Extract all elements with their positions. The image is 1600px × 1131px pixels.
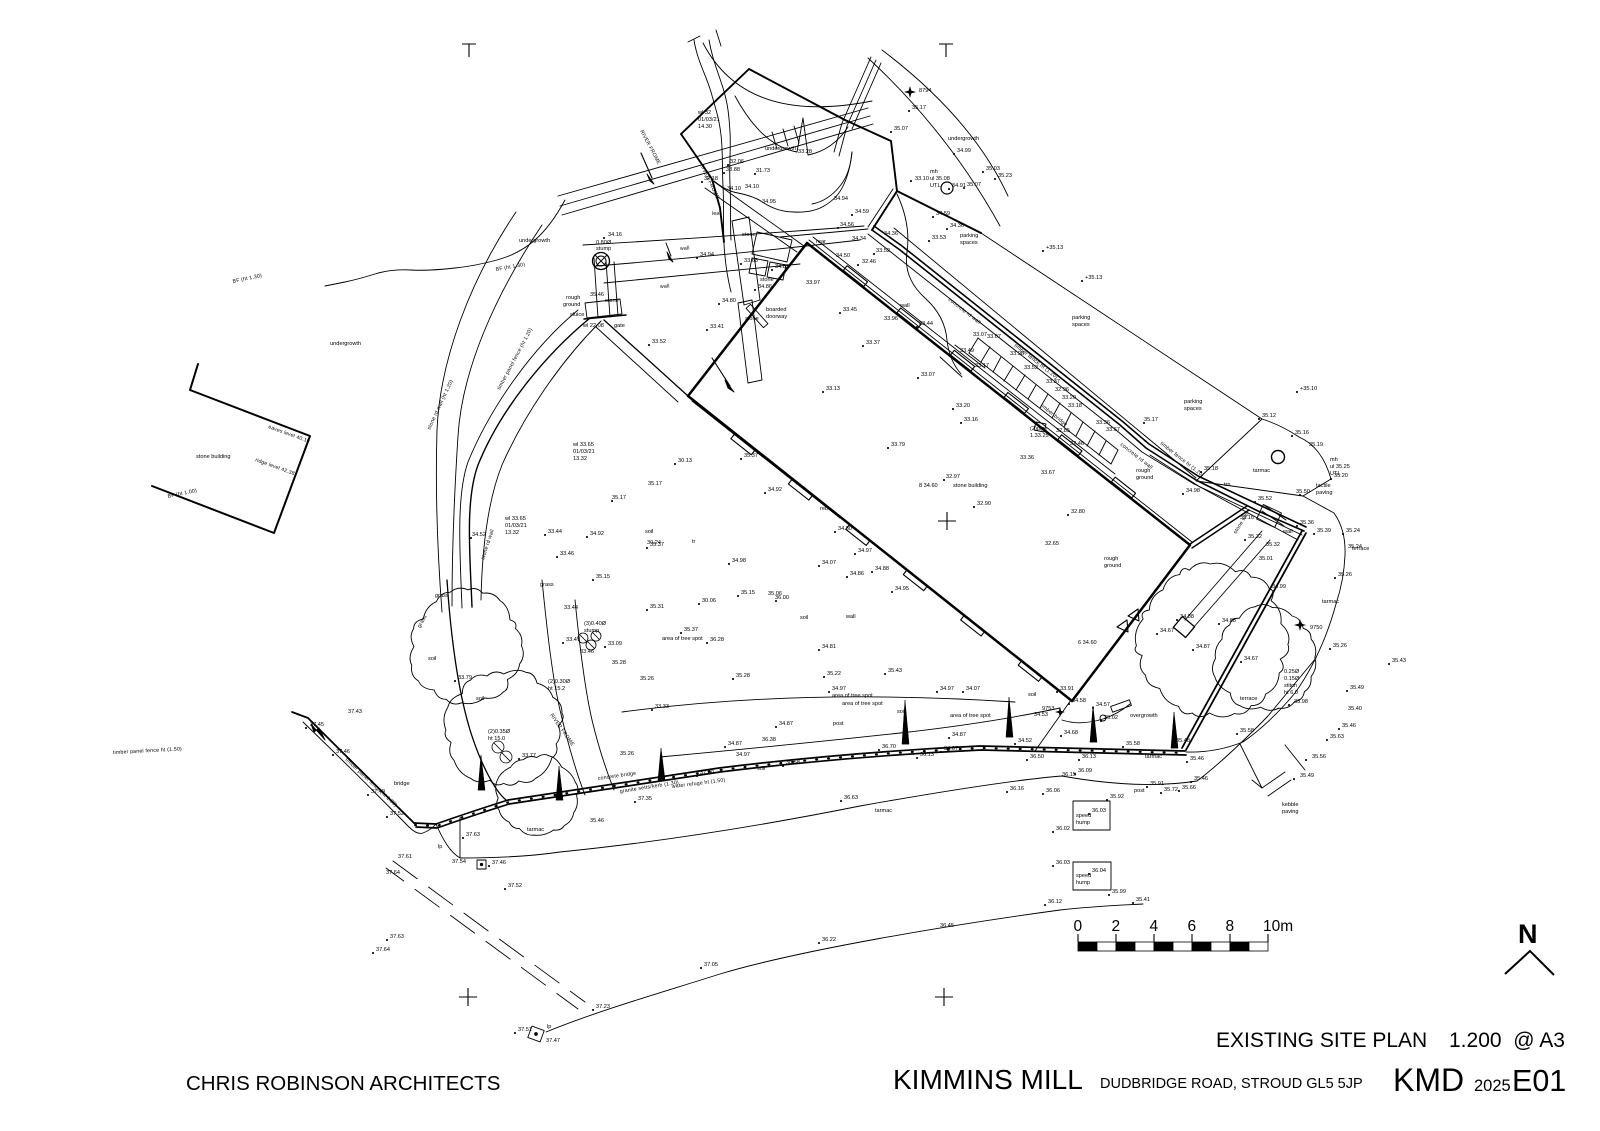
svg-text:33.16: 33.16 bbox=[964, 417, 978, 423]
svg-text:37.63: 37.63 bbox=[466, 832, 480, 838]
svg-text:36.58: 36.58 bbox=[786, 760, 800, 766]
svg-text:35.01: 35.01 bbox=[1259, 556, 1273, 562]
svg-text:parking: parking bbox=[1184, 399, 1202, 405]
svg-text:ul 35.25: ul 35.25 bbox=[1330, 464, 1350, 470]
svg-text:kebble: kebble bbox=[1282, 802, 1298, 808]
svg-text:14.30: 14.30 bbox=[698, 124, 712, 130]
svg-text:13.32: 13.32 bbox=[573, 456, 587, 462]
svg-text:33.52: 33.52 bbox=[876, 248, 890, 254]
svg-text:35.37: 35.37 bbox=[744, 453, 758, 459]
svg-text:UTL: UTL bbox=[1330, 471, 1341, 477]
svg-text:34.10: 34.10 bbox=[745, 184, 759, 190]
svg-text:34.94: 34.94 bbox=[834, 196, 848, 202]
svg-text:35.07: 35.07 bbox=[894, 126, 908, 132]
svg-text:35.02: 35.02 bbox=[1104, 715, 1118, 721]
svg-text:stone: stone bbox=[605, 298, 619, 304]
svg-text:35.19: 35.19 bbox=[1309, 442, 1323, 448]
svg-text:35.66: 35.66 bbox=[1182, 785, 1196, 791]
svg-text:reb: reb bbox=[820, 506, 828, 512]
svg-text:stone building: stone building bbox=[196, 454, 231, 460]
svg-text:hump: hump bbox=[1076, 880, 1090, 886]
svg-text:33.41: 33.41 bbox=[710, 324, 724, 330]
svg-text:34.52: 34.52 bbox=[1018, 738, 1032, 744]
svg-text:34.81: 34.81 bbox=[822, 644, 836, 650]
svg-text:undergrowth: undergrowth bbox=[765, 146, 796, 152]
svg-text:34.07: 34.07 bbox=[822, 560, 836, 566]
svg-text:34.99: 34.99 bbox=[1272, 584, 1286, 590]
svg-text:overgrowth: overgrowth bbox=[1130, 713, 1158, 719]
svg-text:tarmac: tarmac bbox=[1253, 468, 1270, 474]
svg-text:35.46: 35.46 bbox=[590, 292, 604, 298]
svg-text:35.17: 35.17 bbox=[612, 495, 626, 501]
svg-text:36.50: 36.50 bbox=[1030, 754, 1044, 760]
svg-text:34.95: 34.95 bbox=[762, 199, 776, 205]
svg-text:36.38: 36.38 bbox=[762, 737, 776, 743]
svg-text:33.36: 33.36 bbox=[1096, 420, 1110, 426]
svg-text:stone: stone bbox=[742, 232, 756, 238]
svg-text:34.57: 34.57 bbox=[1096, 702, 1110, 708]
svg-text:33.37: 33.37 bbox=[866, 340, 880, 346]
svg-text:spaces: spaces bbox=[960, 240, 978, 246]
svg-text:33.10: 33.10 bbox=[915, 176, 929, 182]
svg-text:35.16: 35.16 bbox=[1295, 430, 1309, 436]
svg-text:soil: soil bbox=[476, 696, 484, 702]
svg-text:wall: wall bbox=[680, 245, 690, 252]
svg-text:0.25Ø: 0.25Ø bbox=[1284, 669, 1300, 675]
svg-text:36.70: 36.70 bbox=[882, 744, 896, 750]
svg-text:36.09: 36.09 bbox=[1078, 768, 1092, 774]
svg-text:32.65: 32.65 bbox=[1045, 541, 1059, 547]
svg-text:36.04: 36.04 bbox=[1092, 868, 1106, 874]
svg-text:35.37: 35.37 bbox=[684, 627, 698, 633]
svg-text:34.87: 34.87 bbox=[728, 741, 742, 747]
svg-text:32.80: 32.80 bbox=[1071, 509, 1085, 515]
svg-text:boarded: boarded bbox=[766, 307, 787, 313]
svg-text:37.46: 37.46 bbox=[492, 860, 506, 866]
svg-text:34.87: 34.87 bbox=[952, 732, 966, 738]
svg-text:lp: lp bbox=[438, 844, 442, 850]
svg-text:37.23: 37.23 bbox=[596, 1004, 610, 1010]
svg-text:2: 2 bbox=[1112, 918, 1121, 935]
svg-text:35.52: 35.52 bbox=[1258, 496, 1272, 502]
svg-text:35.28: 35.28 bbox=[736, 673, 750, 679]
svg-text:30.13: 30.13 bbox=[678, 458, 692, 464]
svg-text:undergrowth: undergrowth bbox=[519, 238, 550, 244]
svg-text:35.41: 35.41 bbox=[1136, 897, 1150, 903]
svg-text:0.15Ø: 0.15Ø bbox=[1284, 676, 1300, 682]
svg-text:area of tree spot: area of tree spot bbox=[832, 693, 873, 699]
svg-text:33.44: 33.44 bbox=[548, 529, 562, 535]
svg-text:(3)0.40Ø: (3)0.40Ø bbox=[584, 621, 607, 627]
svg-text:31.73: 31.73 bbox=[756, 168, 770, 174]
svg-text:trn: trn bbox=[1224, 482, 1231, 488]
svg-text:35.26: 35.26 bbox=[640, 676, 654, 682]
svg-text:33.28: 33.28 bbox=[798, 149, 812, 155]
svg-text:37.64: 37.64 bbox=[386, 870, 400, 876]
svg-text:37.52: 37.52 bbox=[390, 811, 404, 817]
svg-text:35.46: 35.46 bbox=[1194, 776, 1208, 782]
svg-text:34.98: 34.98 bbox=[732, 558, 746, 564]
svg-text:01/03/21: 01/03/21 bbox=[505, 523, 527, 529]
svg-text:37.47: 37.47 bbox=[546, 1038, 560, 1044]
svg-text:tactile: tactile bbox=[1316, 483, 1331, 489]
svg-text:01/03/21: 01/03/21 bbox=[698, 117, 720, 123]
svg-text:37.52: 37.52 bbox=[508, 883, 522, 889]
svg-text:33.88: 33.88 bbox=[726, 167, 740, 173]
svg-text:4: 4 bbox=[1150, 918, 1159, 935]
svg-text:34.88: 34.88 bbox=[1180, 614, 1194, 620]
svg-text:8794: 8794 bbox=[919, 88, 931, 94]
svg-text:34.59: 34.59 bbox=[855, 209, 869, 215]
svg-text:sluice: sluice bbox=[570, 312, 584, 318]
svg-text:stump: stump bbox=[596, 246, 611, 252]
svg-text:8: 8 bbox=[1226, 918, 1235, 935]
svg-text:37.61: 37.61 bbox=[398, 854, 412, 860]
svg-text:36.13: 36.13 bbox=[920, 752, 934, 758]
svg-text:33.91: 33.91 bbox=[1060, 686, 1074, 692]
svg-text:34.52: 34.52 bbox=[472, 532, 486, 538]
svg-text:33.07: 33.07 bbox=[921, 372, 935, 378]
svg-text:+35.13: +35.13 bbox=[1046, 245, 1063, 251]
svg-text:stump: stump bbox=[584, 628, 599, 634]
svg-text:undergrowth: undergrowth bbox=[948, 136, 979, 142]
svg-text:34.53: 34.53 bbox=[1034, 712, 1048, 718]
svg-text:35.36: 35.36 bbox=[1300, 520, 1314, 526]
svg-text:34.07: 34.07 bbox=[966, 686, 980, 692]
svg-text:32.90: 32.90 bbox=[977, 501, 991, 507]
svg-text:ul 35.08: ul 35.08 bbox=[930, 176, 950, 182]
svg-text:rough: rough bbox=[1104, 556, 1118, 562]
svg-text:34.98: 34.98 bbox=[1186, 488, 1200, 494]
svg-text:gate: gate bbox=[614, 323, 625, 329]
svg-text:35.18: 35.18 bbox=[1204, 466, 1218, 472]
svg-text:wl 33.65: wl 33.65 bbox=[504, 516, 526, 522]
svg-text:33.49: 33.49 bbox=[960, 348, 974, 354]
svg-text:37.46: 37.46 bbox=[336, 749, 350, 755]
svg-text:grass: grass bbox=[540, 582, 554, 588]
svg-text:33.97: 33.97 bbox=[806, 280, 820, 286]
svg-text:34.50: 34.50 bbox=[836, 253, 850, 259]
svg-text:35.15: 35.15 bbox=[596, 574, 610, 580]
svg-text:35.23: 35.23 bbox=[998, 173, 1012, 179]
svg-text:parking: parking bbox=[960, 233, 978, 239]
svg-text:33.37: 33.37 bbox=[1046, 379, 1060, 385]
svg-text:33.53: 33.53 bbox=[932, 235, 946, 241]
svg-text:rear: rear bbox=[816, 239, 826, 245]
svg-text:spaces: spaces bbox=[1072, 322, 1090, 328]
svg-text:35.26: 35.26 bbox=[1338, 572, 1352, 578]
svg-text:tarmac: tarmac bbox=[875, 808, 892, 814]
svg-text:34.58: 34.58 bbox=[1072, 698, 1086, 704]
svg-text:terrace: terrace bbox=[1352, 546, 1369, 552]
svg-text:32.85: 32.85 bbox=[1056, 428, 1070, 434]
svg-text:wall: wall bbox=[660, 283, 670, 290]
svg-text:37.45: 37.45 bbox=[310, 722, 324, 728]
svg-text:33.44: 33.44 bbox=[564, 605, 578, 611]
svg-text:35.40: 35.40 bbox=[1348, 706, 1362, 712]
svg-text:stone: stone bbox=[745, 316, 759, 322]
svg-text:tr: tr bbox=[692, 539, 696, 545]
svg-text:37.54: 37.54 bbox=[452, 859, 466, 865]
svg-text:34.97: 34.97 bbox=[940, 686, 954, 692]
svg-text:wall: wall bbox=[1282, 529, 1293, 535]
svg-text:CHRIS ROBINSON ARCHITECTS: CHRIS ROBINSON ARCHITECTS bbox=[186, 1072, 500, 1095]
svg-text:34.83: 34.83 bbox=[775, 264, 789, 270]
svg-text:34.80: 34.80 bbox=[722, 298, 736, 304]
svg-text:(2)pipe: (2)pipe bbox=[1030, 426, 1047, 432]
svg-text:36.15: 36.15 bbox=[1062, 772, 1076, 778]
svg-text:wall: wall bbox=[845, 614, 856, 620]
svg-text:33.20: 33.20 bbox=[956, 403, 970, 409]
svg-text:33.09: 33.09 bbox=[608, 641, 622, 647]
svg-text:area of tree spot: area of tree spot bbox=[662, 636, 703, 642]
svg-text:33.52: 33.52 bbox=[1024, 365, 1038, 371]
svg-text:E01: E01 bbox=[1512, 1064, 1566, 1098]
svg-text:34.67: 34.67 bbox=[944, 746, 958, 752]
svg-text:ground: ground bbox=[563, 302, 580, 308]
svg-text:36.63: 36.63 bbox=[844, 795, 858, 801]
svg-text:ht 15.2: ht 15.2 bbox=[548, 686, 565, 692]
svg-text:36.22: 36.22 bbox=[822, 937, 836, 943]
svg-text:soil: soil bbox=[428, 656, 436, 662]
svg-text:33.67: 33.67 bbox=[1041, 470, 1055, 476]
svg-text:hump: hump bbox=[1076, 820, 1090, 826]
svg-text:wl 33.65: wl 33.65 bbox=[572, 442, 594, 448]
svg-text:stone building: stone building bbox=[953, 483, 988, 489]
svg-text:35.12: 35.12 bbox=[1262, 413, 1276, 419]
svg-text:35.22: 35.22 bbox=[827, 671, 841, 677]
svg-text:stitch: stitch bbox=[1284, 683, 1297, 689]
svg-text:37.63: 37.63 bbox=[390, 934, 404, 940]
svg-text:KIMMINS MILL: KIMMINS MILL bbox=[893, 1064, 1083, 1095]
svg-text:35.32: 35.32 bbox=[1248, 534, 1262, 540]
svg-text:35.07: 35.07 bbox=[967, 182, 981, 188]
svg-text:34.94: 34.94 bbox=[700, 252, 714, 258]
svg-text:tarmac: tarmac bbox=[527, 827, 544, 833]
svg-text:35.72: 35.72 bbox=[1164, 787, 1178, 793]
svg-text:35.39: 35.39 bbox=[1317, 528, 1331, 534]
svg-text:+35.13: +35.13 bbox=[1085, 275, 1102, 281]
svg-text:2025: 2025 bbox=[1474, 1077, 1511, 1095]
svg-text:36.28: 36.28 bbox=[710, 637, 724, 643]
svg-text:35.26: 35.26 bbox=[620, 751, 634, 757]
svg-text:34.68: 34.68 bbox=[1064, 730, 1078, 736]
svg-text:wall: wall bbox=[899, 303, 910, 309]
svg-text:leat: leat bbox=[712, 211, 722, 217]
svg-text:13.32: 13.32 bbox=[505, 530, 519, 536]
svg-text:34.88: 34.88 bbox=[1222, 618, 1236, 624]
svg-text:33.52: 33.52 bbox=[652, 339, 666, 345]
svg-text:33.96: 33.96 bbox=[884, 316, 898, 322]
svg-text:34.86: 34.86 bbox=[758, 284, 772, 290]
svg-text:36.13: 36.13 bbox=[1082, 754, 1096, 760]
svg-text:33.79: 33.79 bbox=[458, 675, 472, 681]
svg-text:33.67: 33.67 bbox=[1106, 427, 1120, 433]
svg-text:tarmac: tarmac bbox=[1322, 599, 1339, 605]
svg-text:35.28: 35.28 bbox=[612, 660, 626, 666]
svg-text:35.17: 35.17 bbox=[912, 105, 926, 111]
svg-text:area of tree spot: area of tree spot bbox=[950, 713, 991, 719]
svg-text:32.06: 32.06 bbox=[730, 159, 744, 165]
svg-text:stone: stone bbox=[760, 277, 774, 283]
svg-text:33.33: 33.33 bbox=[655, 704, 669, 710]
svg-text:37.35: 37.35 bbox=[638, 796, 652, 802]
svg-text:37.00: 37.00 bbox=[700, 770, 714, 776]
svg-text:35.63: 35.63 bbox=[1330, 734, 1344, 740]
svg-text:1.200 @ A3: 1.200 @ A3 bbox=[1449, 1029, 1565, 1052]
svg-text:35.58: 35.58 bbox=[1240, 728, 1254, 734]
svg-text:post: post bbox=[1134, 788, 1145, 794]
svg-text:37.64: 37.64 bbox=[376, 947, 390, 953]
svg-text:36.45: 36.45 bbox=[940, 923, 954, 929]
svg-text:undergrowth: undergrowth bbox=[330, 341, 361, 347]
svg-text:33.13: 33.13 bbox=[826, 386, 840, 392]
svg-text:34.92: 34.92 bbox=[768, 487, 782, 493]
svg-text:1.33.25: 1.33.25 bbox=[1030, 433, 1049, 439]
svg-text:35.17: 35.17 bbox=[1144, 417, 1158, 423]
svg-text:33.44: 33.44 bbox=[919, 321, 933, 327]
svg-text:wl 32: wl 32 bbox=[697, 110, 711, 116]
svg-text:36.03: 36.03 bbox=[1092, 808, 1106, 814]
svg-text:34.99: 34.99 bbox=[957, 148, 971, 154]
svg-text:6: 6 bbox=[1188, 918, 1197, 935]
svg-text:34.10: 34.10 bbox=[727, 186, 741, 192]
svg-text:ground: ground bbox=[1136, 475, 1153, 481]
svg-text:35.91: 35.91 bbox=[1150, 781, 1164, 787]
svg-text:36.16: 36.16 bbox=[1010, 786, 1024, 792]
svg-text:34.36: 34.36 bbox=[950, 223, 964, 229]
svg-text:KMD: KMD bbox=[1393, 1062, 1464, 1098]
svg-text:UTL: UTL bbox=[930, 183, 941, 189]
svg-text:33.77: 33.77 bbox=[522, 753, 536, 759]
svg-text:37.05: 37.05 bbox=[704, 962, 718, 968]
svg-text:DUDBRIDGE ROAD, STROUD GL5 5JP: DUDBRIDGE ROAD, STROUD GL5 5JP bbox=[1100, 1076, 1363, 1092]
svg-text:34.67: 34.67 bbox=[1244, 656, 1258, 662]
svg-text:32.96: 32.96 bbox=[1055, 387, 1069, 393]
svg-text:36.03: 36.03 bbox=[1056, 860, 1070, 866]
svg-text:34.97: 34.97 bbox=[858, 548, 872, 554]
svg-text:33.98: 33.98 bbox=[1294, 699, 1308, 705]
svg-text:soil: soil bbox=[645, 529, 653, 535]
svg-text:doorway: doorway bbox=[766, 314, 787, 320]
svg-text:36.12: 36.12 bbox=[1048, 899, 1062, 905]
svg-text:35.46: 35.46 bbox=[1190, 756, 1204, 762]
svg-text:(2)0.30Ø: (2)0.30Ø bbox=[548, 679, 571, 685]
svg-text:35.43: 35.43 bbox=[888, 668, 902, 674]
svg-text:wl 22.08: wl 22.08 bbox=[582, 323, 604, 329]
svg-text:34.88: 34.88 bbox=[875, 566, 889, 572]
svg-text:37.43: 37.43 bbox=[348, 709, 362, 715]
svg-text:35.50: 35.50 bbox=[1296, 489, 1310, 495]
svg-text:soil: soil bbox=[1028, 692, 1036, 698]
svg-text:34.97: 34.97 bbox=[832, 686, 846, 692]
svg-text:35.17: 35.17 bbox=[648, 481, 662, 487]
svg-text:(2)0.35Ø: (2)0.35Ø bbox=[488, 729, 511, 735]
svg-text:34.87: 34.87 bbox=[1196, 644, 1210, 650]
svg-text:34.16: 34.16 bbox=[608, 232, 622, 238]
svg-text:9750: 9750 bbox=[1310, 625, 1322, 631]
svg-text:33.18: 33.18 bbox=[1068, 403, 1082, 409]
svg-text:post: post bbox=[833, 721, 844, 727]
svg-text:0: 0 bbox=[1074, 918, 1083, 935]
svg-text:rough: rough bbox=[566, 295, 580, 301]
svg-text:ht 15.0: ht 15.0 bbox=[488, 736, 505, 742]
svg-text:N: N bbox=[1518, 919, 1538, 949]
svg-text:35.31: 35.31 bbox=[650, 604, 664, 610]
svg-text:33.68: 33.68 bbox=[744, 258, 758, 264]
svg-text:36.06: 36.06 bbox=[1046, 788, 1060, 794]
svg-text:33.20: 33.20 bbox=[1062, 395, 1076, 401]
svg-text:33.17: 33.17 bbox=[975, 363, 989, 369]
svg-text:34.67: 34.67 bbox=[1160, 628, 1174, 634]
svg-text:34.87: 34.87 bbox=[779, 721, 793, 727]
svg-text:34.59: 34.59 bbox=[936, 211, 950, 217]
svg-text:35.03: 35.03 bbox=[986, 166, 1000, 172]
svg-text:01/03/21: 01/03/21 bbox=[573, 449, 595, 455]
svg-text:35.06: 35.06 bbox=[768, 591, 782, 597]
svg-text:ground: ground bbox=[1104, 563, 1121, 569]
svg-text:36.02: 36.02 bbox=[1056, 826, 1070, 832]
svg-text:paving: paving bbox=[1316, 490, 1332, 496]
svg-text:35.15: 35.15 bbox=[741, 590, 755, 596]
svg-text:34.34: 34.34 bbox=[852, 236, 866, 242]
svg-text:35.49: 35.49 bbox=[1300, 773, 1314, 779]
svg-text:lp: lp bbox=[547, 1024, 551, 1030]
svg-text:EXISTING SITE PLAN: EXISTING SITE PLAN bbox=[1216, 1029, 1427, 1052]
svg-text:mh: mh bbox=[930, 169, 938, 175]
svg-text:35.46: 35.46 bbox=[590, 818, 604, 824]
svg-text:bridge: bridge bbox=[394, 781, 410, 787]
svg-text:terrace: terrace bbox=[1240, 696, 1257, 702]
svg-text:35.92: 35.92 bbox=[1110, 794, 1124, 800]
svg-text:10m: 10m bbox=[1263, 918, 1293, 935]
svg-text:soil: soil bbox=[897, 709, 905, 715]
svg-text:30.06: 30.06 bbox=[702, 598, 716, 604]
svg-text:ht 6.0: ht 6.0 bbox=[1284, 690, 1298, 696]
svg-text:tarmac: tarmac bbox=[1145, 754, 1162, 760]
svg-text:34.95: 34.95 bbox=[895, 586, 909, 592]
svg-text:32.46: 32.46 bbox=[862, 259, 876, 265]
svg-text:34.92: 34.92 bbox=[590, 531, 604, 537]
svg-text:34.80: 34.80 bbox=[838, 526, 852, 532]
svg-text:34.97: 34.97 bbox=[736, 752, 750, 758]
svg-text:35.43: 35.43 bbox=[1392, 658, 1406, 664]
svg-text:paving: paving bbox=[1282, 809, 1298, 815]
svg-text:parking: parking bbox=[1072, 315, 1090, 321]
svg-text:34.36: 34.36 bbox=[884, 231, 898, 237]
svg-text:32.46: 32.46 bbox=[1070, 441, 1084, 447]
svg-text:6 34.60: 6 34.60 bbox=[1078, 640, 1097, 646]
svg-text:33.07: 33.07 bbox=[987, 334, 1001, 340]
svg-text:grass: grass bbox=[435, 593, 449, 599]
svg-text:35.56: 35.56 bbox=[1312, 754, 1326, 760]
svg-text:37.51: 37.51 bbox=[518, 1027, 532, 1033]
svg-text:32.18: 32.18 bbox=[704, 176, 718, 182]
svg-text:35.58: 35.58 bbox=[1126, 741, 1140, 747]
svg-text:33.45: 33.45 bbox=[843, 307, 857, 313]
svg-text:33.36: 33.36 bbox=[1020, 455, 1034, 461]
svg-text:33.79: 33.79 bbox=[891, 442, 905, 448]
svg-text:32.97: 32.97 bbox=[946, 474, 960, 480]
svg-text:33.46: 33.46 bbox=[580, 649, 594, 655]
svg-text:33.46: 33.46 bbox=[560, 551, 574, 557]
svg-text:35.46: 35.46 bbox=[1342, 723, 1356, 729]
svg-text:soil: soil bbox=[800, 615, 808, 621]
svg-text:spaces: spaces bbox=[1184, 406, 1202, 412]
svg-text:mh: mh bbox=[1330, 457, 1338, 463]
svg-text:30.24: 30.24 bbox=[647, 540, 661, 546]
svg-text:+35.10: +35.10 bbox=[1300, 386, 1317, 392]
